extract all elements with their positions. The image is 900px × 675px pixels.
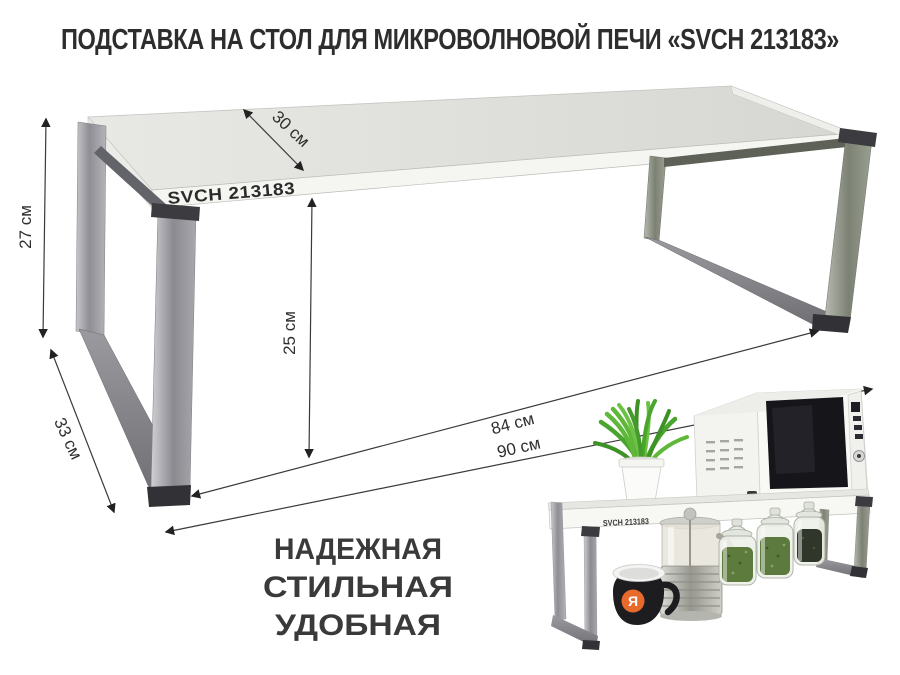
dim-base-depth-label: 33 см: [50, 415, 86, 463]
slogan-line-3: УДОБНАЯ: [275, 609, 441, 642]
right-leg: [644, 128, 877, 333]
slogan: НАДЕЖНАЯ СТИЛЬНАЯ УДОБНАЯ: [263, 533, 453, 642]
product-card: ПОДСТАВКА НА СТОЛ ДЛЯ МИКРОВОЛНОВОЙ ПЕЧИ…: [0, 0, 900, 675]
inset-model-label: SVCH 213183: [603, 516, 650, 528]
left-leg-foot: [147, 485, 191, 507]
dim-height-label: 27 см: [16, 205, 35, 249]
product-graphic: ПОДСТАВКА НА СТОЛ ДЛЯ МИКРОВОЛНОВОЙ ПЕЧИ…: [0, 0, 900, 675]
dim-inner-width-label: 84 см: [489, 409, 536, 438]
mug-logo-letter: Я: [628, 593, 638, 609]
plant-pot: [622, 467, 661, 501]
page-title: ПОДСТАВКА НА СТОЛ ДЛЯ МИКРОВОЛНОВОЙ ПЕЧИ…: [61, 22, 839, 56]
dim-inner-height-line: [309, 199, 312, 457]
inset-photo: SVCH 213183: [548, 389, 873, 650]
slogan-line-1: НАДЕЖНАЯ: [274, 533, 442, 566]
dim-height-line: [43, 119, 46, 337]
plant-pot-rim: [619, 459, 664, 467]
inset-plant: [595, 401, 687, 501]
inset-microwave: [694, 389, 868, 502]
dim-inner-height-label: 25 см: [280, 311, 299, 355]
inset-jar-1: [719, 519, 756, 585]
slogan-line-2: СТИЛЬНАЯ: [263, 571, 453, 604]
right-leg-foot: [812, 314, 851, 333]
